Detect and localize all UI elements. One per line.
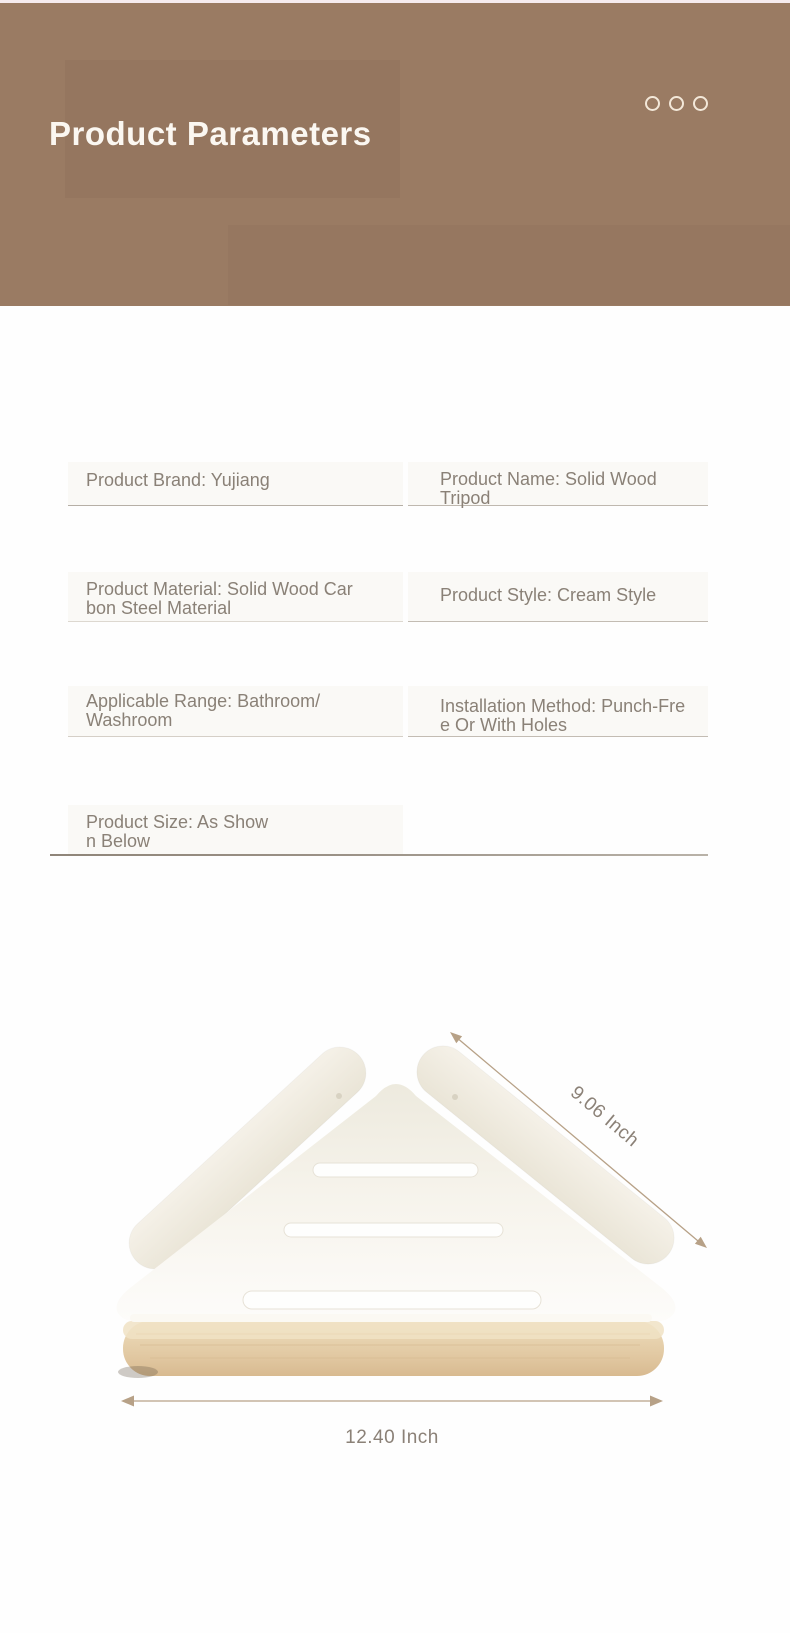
param-size: Product Size: As Show n Below xyxy=(68,805,403,855)
width-dimension-label: 12.40 Inch xyxy=(345,1427,439,1448)
page-background: Product Parameters Product Brand: Yujian… xyxy=(0,0,790,1633)
diagonal-dimension-label: 9.06 Inch xyxy=(566,1082,643,1151)
circle-outline-icon xyxy=(693,96,708,111)
shelf-slot xyxy=(284,1223,503,1237)
header-watermark xyxy=(228,225,790,305)
table-bottom-rule xyxy=(50,854,708,856)
header-dots xyxy=(645,96,708,111)
wing-hole xyxy=(452,1094,458,1100)
page-title: Product Parameters xyxy=(49,115,372,153)
product-image: 9.06 Inch 12.40 Inch xyxy=(0,950,790,1470)
param-applicable-range: Applicable Range: Bathroom/ Washroom xyxy=(68,686,403,737)
width-dimension-arrow xyxy=(121,1396,663,1407)
param-installation-method: Installation Method: Punch-Fre e Or With… xyxy=(408,686,708,737)
circle-outline-icon xyxy=(645,96,660,111)
param-material: Product Material: Solid Wood Car bon Ste… xyxy=(68,572,403,622)
circle-outline-icon xyxy=(669,96,684,111)
param-name: Product Name: Solid Wood Tripod xyxy=(408,462,708,506)
shelf-slot xyxy=(243,1291,541,1309)
wood-base xyxy=(118,1321,664,1378)
shelf-slot xyxy=(313,1163,478,1177)
header-banner: Product Parameters xyxy=(0,3,790,306)
shelf-front-lip xyxy=(130,1314,652,1322)
param-style: Product Style: Cream Style xyxy=(408,572,708,622)
wing-hole xyxy=(336,1093,342,1099)
param-brand: Product Brand: Yujiang xyxy=(68,462,403,506)
